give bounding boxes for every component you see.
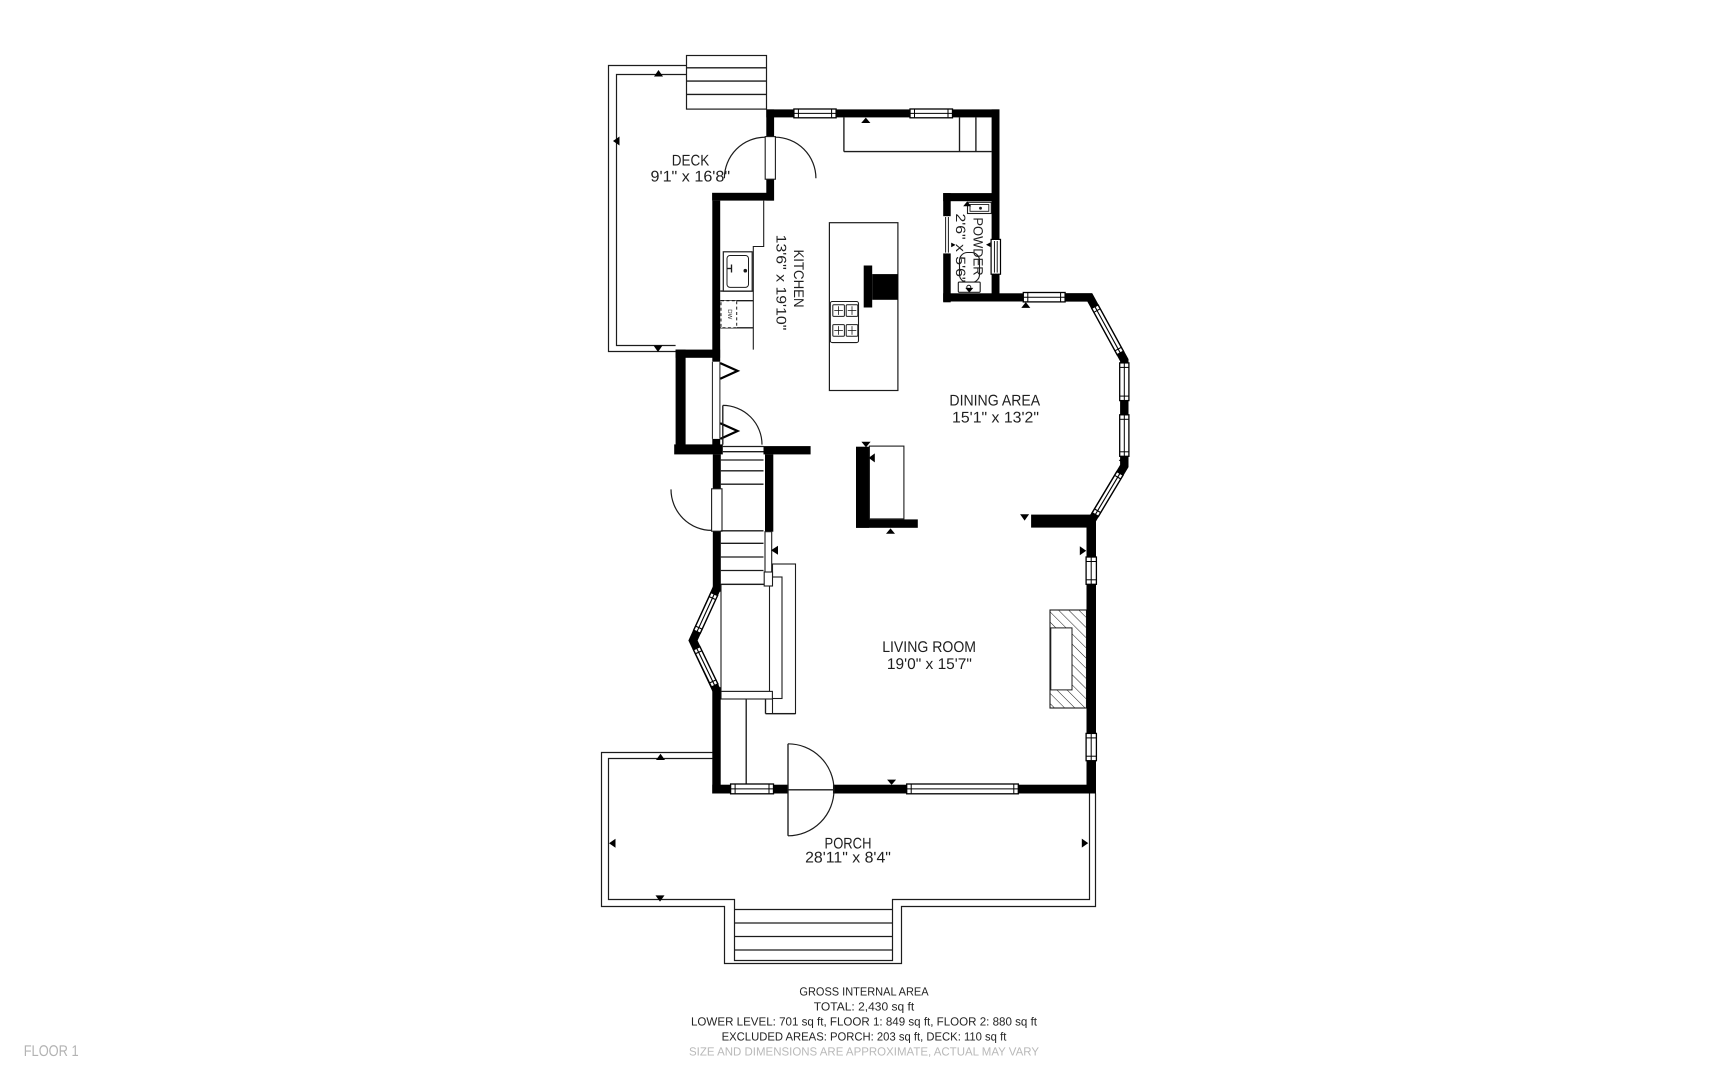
svg-text:19'0" x 15'7": 19'0" x 15'7"	[887, 656, 972, 673]
svg-text:LIVING ROOM: LIVING ROOM	[882, 639, 976, 656]
svg-text:LOWER LEVEL: 701 sq ft, FLOOR: LOWER LEVEL: 701 sq ft, FLOOR 1: 849 sq …	[691, 1015, 1038, 1029]
svg-text:SIZE AND DIMENSIONS ARE APPROX: SIZE AND DIMENSIONS ARE APPROXIMATE, ACT…	[689, 1045, 1039, 1059]
svg-text:GROSS INTERNAL AREA: GROSS INTERNAL AREA	[799, 985, 928, 999]
svg-text:DW: DW	[726, 309, 733, 319]
svg-text:DINING AREA: DINING AREA	[949, 392, 1040, 409]
svg-text:9'1" x 16'8": 9'1" x 16'8"	[651, 168, 731, 185]
svg-text:FLOOR 1: FLOOR 1	[24, 1043, 79, 1060]
svg-text:2'6" x 5'6": 2'6" x 5'6"	[953, 214, 968, 283]
svg-text:13'6" x 19'10": 13'6" x 19'10"	[774, 235, 790, 331]
svg-text:28'11" x 8'4": 28'11" x 8'4"	[805, 850, 891, 867]
svg-text:EXCLUDED AREAS: PORCH: 203 sq: EXCLUDED AREAS: PORCH: 203 sq ft, DECK: …	[722, 1030, 1007, 1044]
svg-text:TOTAL: 2,430 sq ft: TOTAL: 2,430 sq ft	[814, 1000, 915, 1014]
svg-text:POWDER: POWDER	[971, 217, 986, 276]
svg-text:15'1" x 13'2": 15'1" x 13'2"	[952, 410, 1039, 427]
svg-text:DECK: DECK	[672, 152, 710, 169]
svg-text:KITCHEN: KITCHEN	[791, 249, 807, 307]
